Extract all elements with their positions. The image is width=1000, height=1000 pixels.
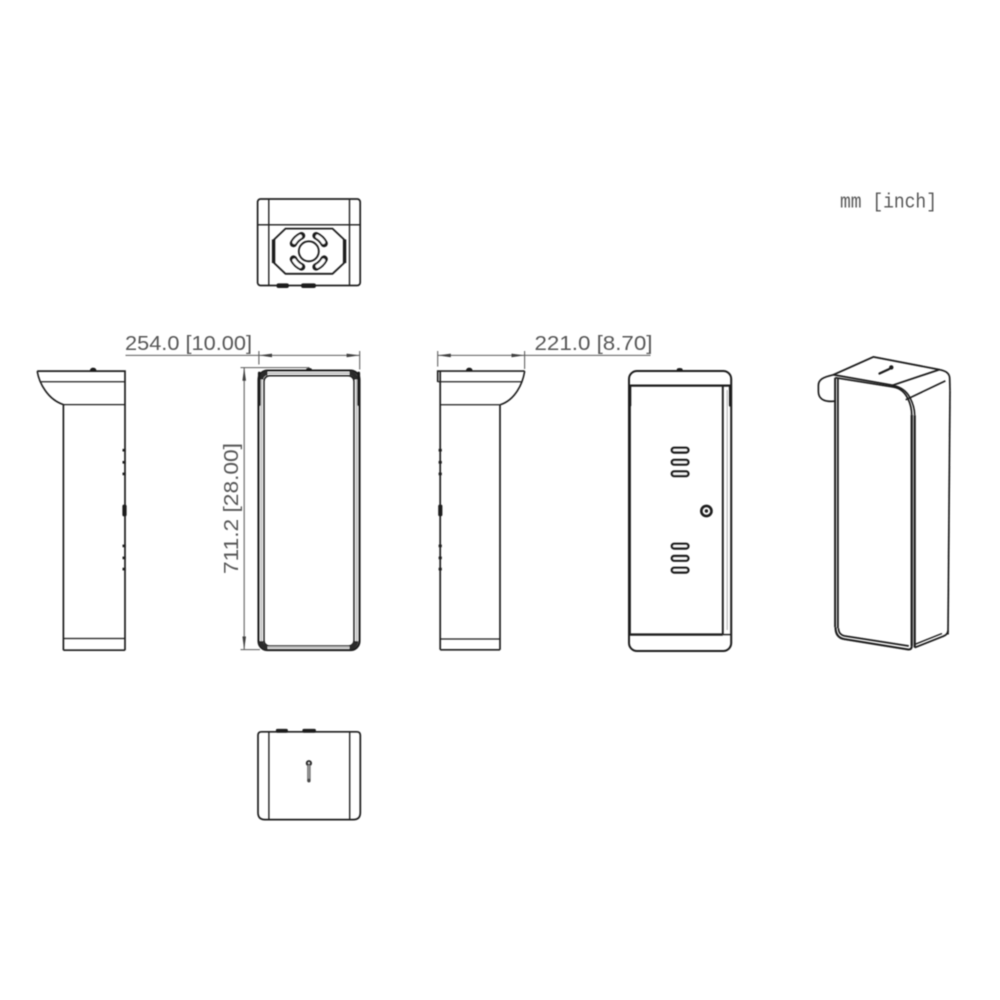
svg-text:254.0 [10.00]: 254.0 [10.00]	[125, 333, 252, 355]
svg-text:mm [inch]: mm [inch]	[840, 192, 937, 215]
svg-text:221.0 [8.70]: 221.0 [8.70]	[535, 333, 653, 355]
svg-text:711.2 [28.00]: 711.2 [28.00]	[221, 443, 243, 574]
